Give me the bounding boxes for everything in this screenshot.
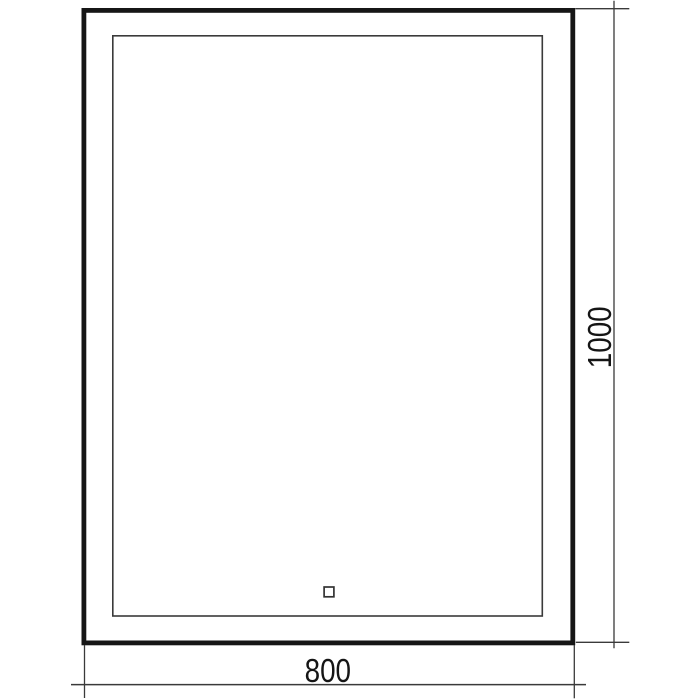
svg-text:800: 800 [305, 653, 351, 690]
svg-text:1000: 1000 [582, 306, 619, 368]
